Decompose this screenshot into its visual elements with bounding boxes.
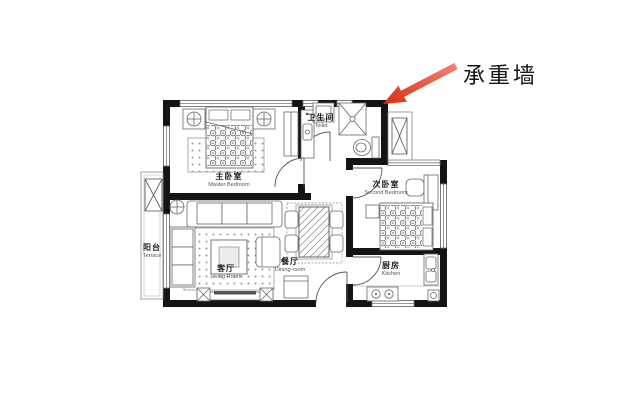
floor-lamp-icon xyxy=(170,200,184,214)
label-en: Master Bedroom xyxy=(208,182,249,189)
label-kitchen: 厨房 Kitchen xyxy=(379,261,402,279)
double-bed-icon xyxy=(206,107,253,168)
load-bearing-wall-arrow xyxy=(383,63,458,104)
toilet-bowl-icon xyxy=(354,137,380,158)
ac-niche-icon xyxy=(392,118,407,154)
kitchen-door-arc xyxy=(353,257,381,285)
speaker-icon xyxy=(260,288,273,301)
label-terrace: 阳台 Terrace xyxy=(140,243,163,261)
label-en: Living Room xyxy=(210,274,241,281)
window xyxy=(180,101,292,107)
nightstand-icon xyxy=(366,205,379,218)
label-en: Kitchen xyxy=(382,271,401,278)
sofa-icon xyxy=(187,201,282,227)
label-zh: 卫生间 xyxy=(308,113,335,123)
label-zh: 客厅 xyxy=(207,264,246,274)
shower-icon xyxy=(339,103,366,135)
wardrobe-icon xyxy=(284,112,298,156)
master-bedroom-door-arc xyxy=(275,158,304,187)
label-en: Toilet xyxy=(310,123,332,130)
label-zh: 阳台 xyxy=(140,243,163,253)
entrance-door-arc xyxy=(316,272,347,303)
label-en: Dining-room xyxy=(275,267,306,274)
floor-drain-icon xyxy=(428,290,439,301)
label-zh: 主卧室 xyxy=(203,172,255,182)
label-zh: 次卧室 xyxy=(359,180,413,190)
window xyxy=(164,214,170,288)
single-bed-icon xyxy=(380,203,433,250)
label-zh: 厨房 xyxy=(379,261,402,271)
label-second-bedroom: 次卧室 Second Bedroom xyxy=(359,180,413,198)
window xyxy=(388,160,440,166)
nightstand-lamp-icon xyxy=(253,109,275,129)
ac-unit-icon xyxy=(145,179,162,211)
kitchen-stove-icon xyxy=(367,287,398,301)
label-dining-room: 餐厅 Dining-room xyxy=(271,257,309,275)
label-master-bedroom: 主卧室 Master Bedroom xyxy=(203,172,255,190)
speaker-icon xyxy=(197,288,210,301)
label-en: Terrace xyxy=(143,253,162,260)
shoe-cabinet-icon xyxy=(284,276,308,298)
floorplan-canvas: 主卧室 Master Bedroom 卫生间 Toilet 次卧室 Second… xyxy=(0,0,618,409)
label-zh: 餐厅 xyxy=(271,257,309,267)
chaise-sofa-icon xyxy=(170,227,195,287)
label-en: Second Bedroom xyxy=(364,190,407,197)
label-toilet: 卫生间 Toilet xyxy=(308,113,335,131)
kitchen-sink-icon xyxy=(424,254,438,285)
annotation-load-bearing-wall: 承重墙 xyxy=(463,58,538,90)
dining-table-icon xyxy=(296,205,332,259)
nightstand-lamp-icon xyxy=(183,109,205,129)
window xyxy=(164,126,170,166)
label-living-room: 客厅 Living Room xyxy=(207,264,246,282)
window xyxy=(441,184,447,248)
